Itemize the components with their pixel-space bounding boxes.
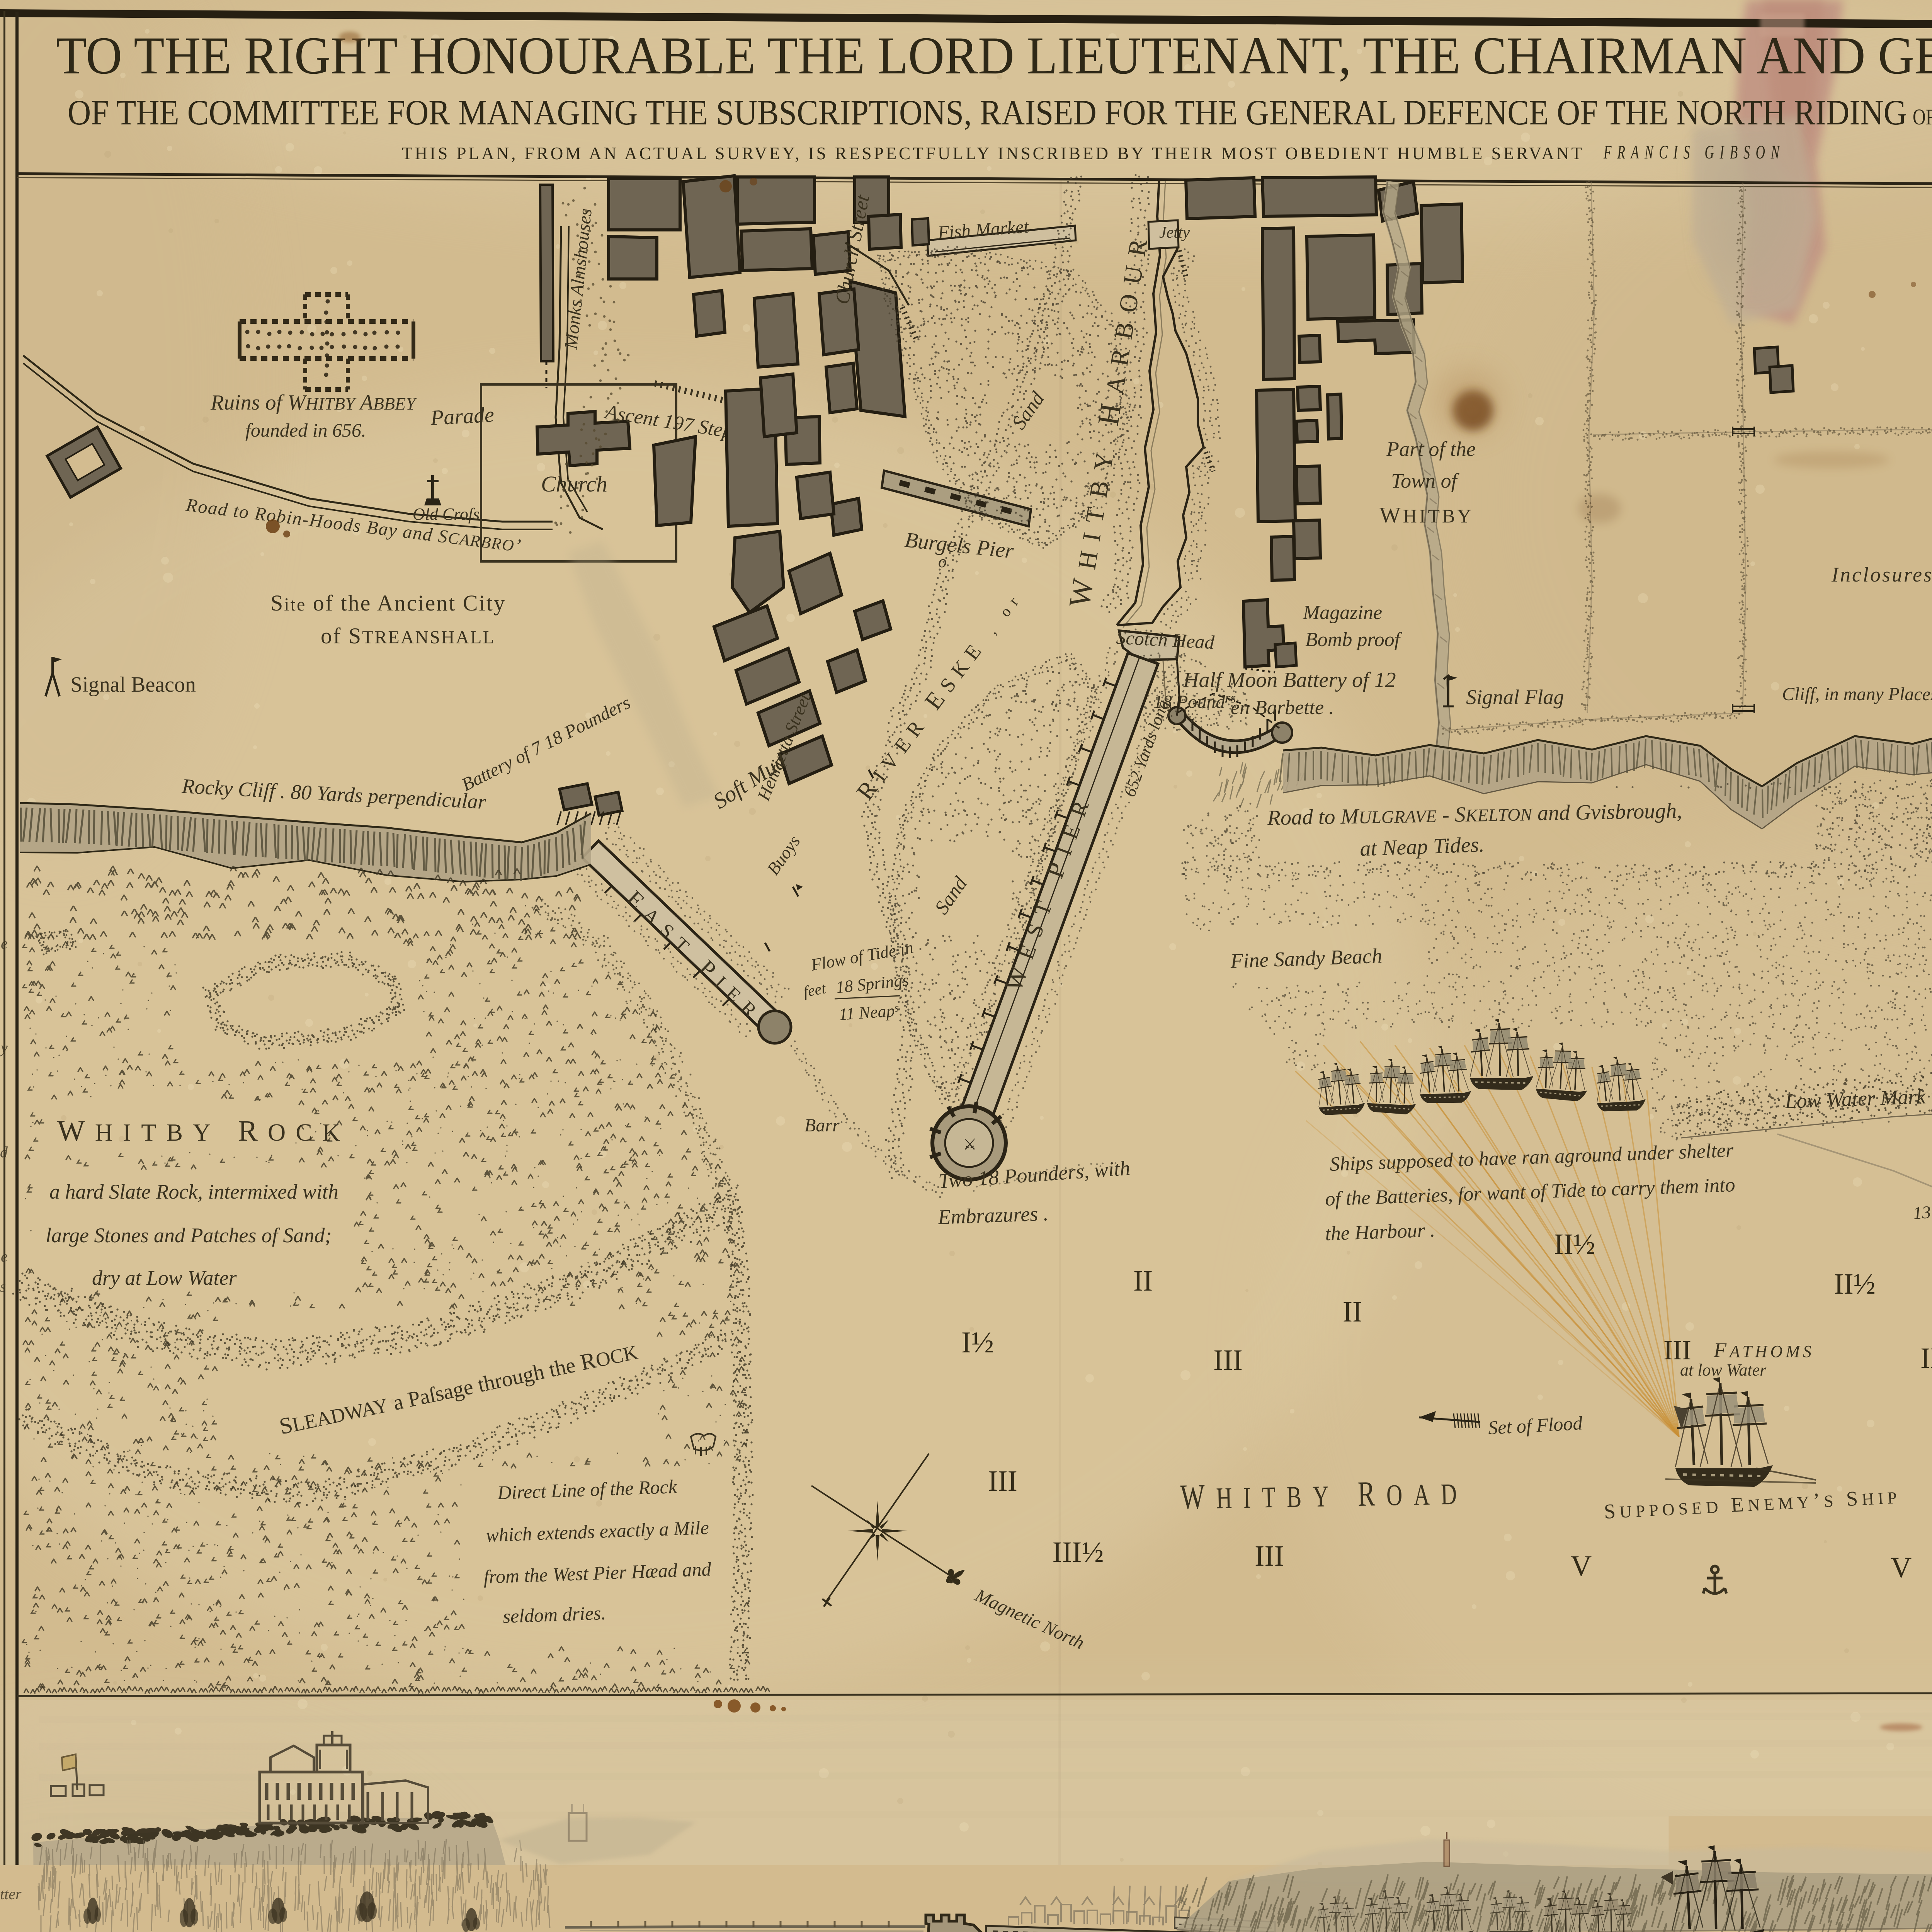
svg-text:III: III (1920, 1342, 1932, 1374)
svg-text:FATHOMS: FATHOMS (1713, 1338, 1815, 1362)
svg-text:Site of the Ancient City: Site of the Ancient City (270, 590, 506, 616)
svg-text:Part of the: Part of the (1386, 437, 1476, 461)
svg-text:Jetty: Jetty (1159, 224, 1190, 241)
svg-text:FRANCIS GIBSON: FRANCIS GIBSON (1603, 141, 1785, 163)
svg-text:the Harbour .: the Harbour . (1325, 1219, 1435, 1245)
svg-text:III: III (988, 1465, 1017, 1497)
svg-text:s: s (0, 1278, 6, 1295)
svg-text:at Neap Tides.: at Neap Tides. (1359, 833, 1485, 861)
svg-text:Church: Church (541, 471, 607, 497)
svg-text:OF THE COMMITTEE FOR MANAGING: OF THE COMMITTEE FOR MANAGING THE SUBSCR… (68, 93, 1907, 132)
svg-text:Cliſf, in many Places acceſsib: Cliſf, in many Places acceſsible. (1782, 684, 1932, 704)
svg-text:WHITBY: WHITBY (1379, 502, 1474, 527)
svg-text:WHITBY ROCK: WHITBY ROCK (57, 1115, 350, 1147)
svg-text:Signal Flag: Signal Flag (1466, 685, 1564, 709)
svg-text:Inclosures: Inclosures (1831, 563, 1932, 586)
svg-text:13 Feet: 13 Feet (1912, 1199, 1932, 1223)
svg-text:Half Moon Battery of 12: Half Moon Battery of 12 (1183, 668, 1396, 692)
svg-text:d: d (0, 1143, 8, 1161)
svg-text:II: II (1133, 1265, 1153, 1297)
svg-text:Town of: Town of (1391, 469, 1460, 492)
svg-text:o: o (938, 552, 947, 571)
svg-text:Old Croſs: Old Croſs (413, 505, 480, 524)
svg-text:I½: I½ (961, 1325, 994, 1359)
svg-text:II½: II½ (1834, 1268, 1876, 1300)
svg-text:of STREANSHALL: of STREANSHALL (321, 623, 495, 648)
svg-text:Signal Beacon: Signal Beacon (70, 673, 196, 697)
svg-text:V: V (1571, 1550, 1592, 1582)
svg-text:large Stones and Patches o: large Stones and Patches of Sand; (46, 1224, 332, 1247)
svg-text:seldom dries.: seldom dries. (502, 1602, 606, 1627)
svg-text:III: III (1255, 1540, 1284, 1572)
svg-text:at low Water: at low Water (1680, 1361, 1767, 1379)
svg-text:Parade: Parade (429, 403, 495, 430)
svg-text:V: V (1891, 1551, 1912, 1584)
svg-text:Embrazures .: Embrazures . (937, 1202, 1049, 1229)
svg-text:Magazine: Magazine (1303, 602, 1382, 624)
svg-text:dry at Low Water: dry at Low Water (92, 1266, 237, 1289)
svg-text:tter: tter (0, 1885, 22, 1903)
svg-text:THIS PLAN, FROM AN ACTUAL SURV: THIS PLAN, FROM AN ACTUAL SURVEY, IS RES… (402, 143, 1584, 163)
svg-text:Barr: Barr (804, 1115, 840, 1136)
svg-text:e: e (1, 935, 8, 952)
svg-text:founded in 656.: founded in 656. (245, 419, 366, 441)
svg-text:Low Water Mark: Low Water Mark (1784, 1085, 1926, 1113)
svg-text:Ruins of WHITBY ABBEY: Ruins of WHITBY ABBEY (210, 391, 417, 415)
svg-text:III½: III½ (1053, 1536, 1104, 1568)
svg-text:y: y (0, 1039, 8, 1056)
svg-text:III: III (1213, 1344, 1243, 1376)
svg-text:II: II (1343, 1296, 1362, 1328)
svg-text:e: e (1, 1248, 8, 1265)
svg-text:Bomb proof: Bomb proof (1305, 629, 1403, 651)
svg-text:a hard Slate Rock, intermixed: a hard Slate Rock, intermixed with (49, 1180, 338, 1203)
svg-text:⚔: ⚔ (963, 1136, 977, 1153)
svg-text:II½: II½ (1554, 1228, 1595, 1260)
svg-text:TO THE RIGHT HONOURABLE THE LO: TO THE RIGHT HONOURABLE THE LORD LIEUTEN… (56, 26, 1932, 85)
